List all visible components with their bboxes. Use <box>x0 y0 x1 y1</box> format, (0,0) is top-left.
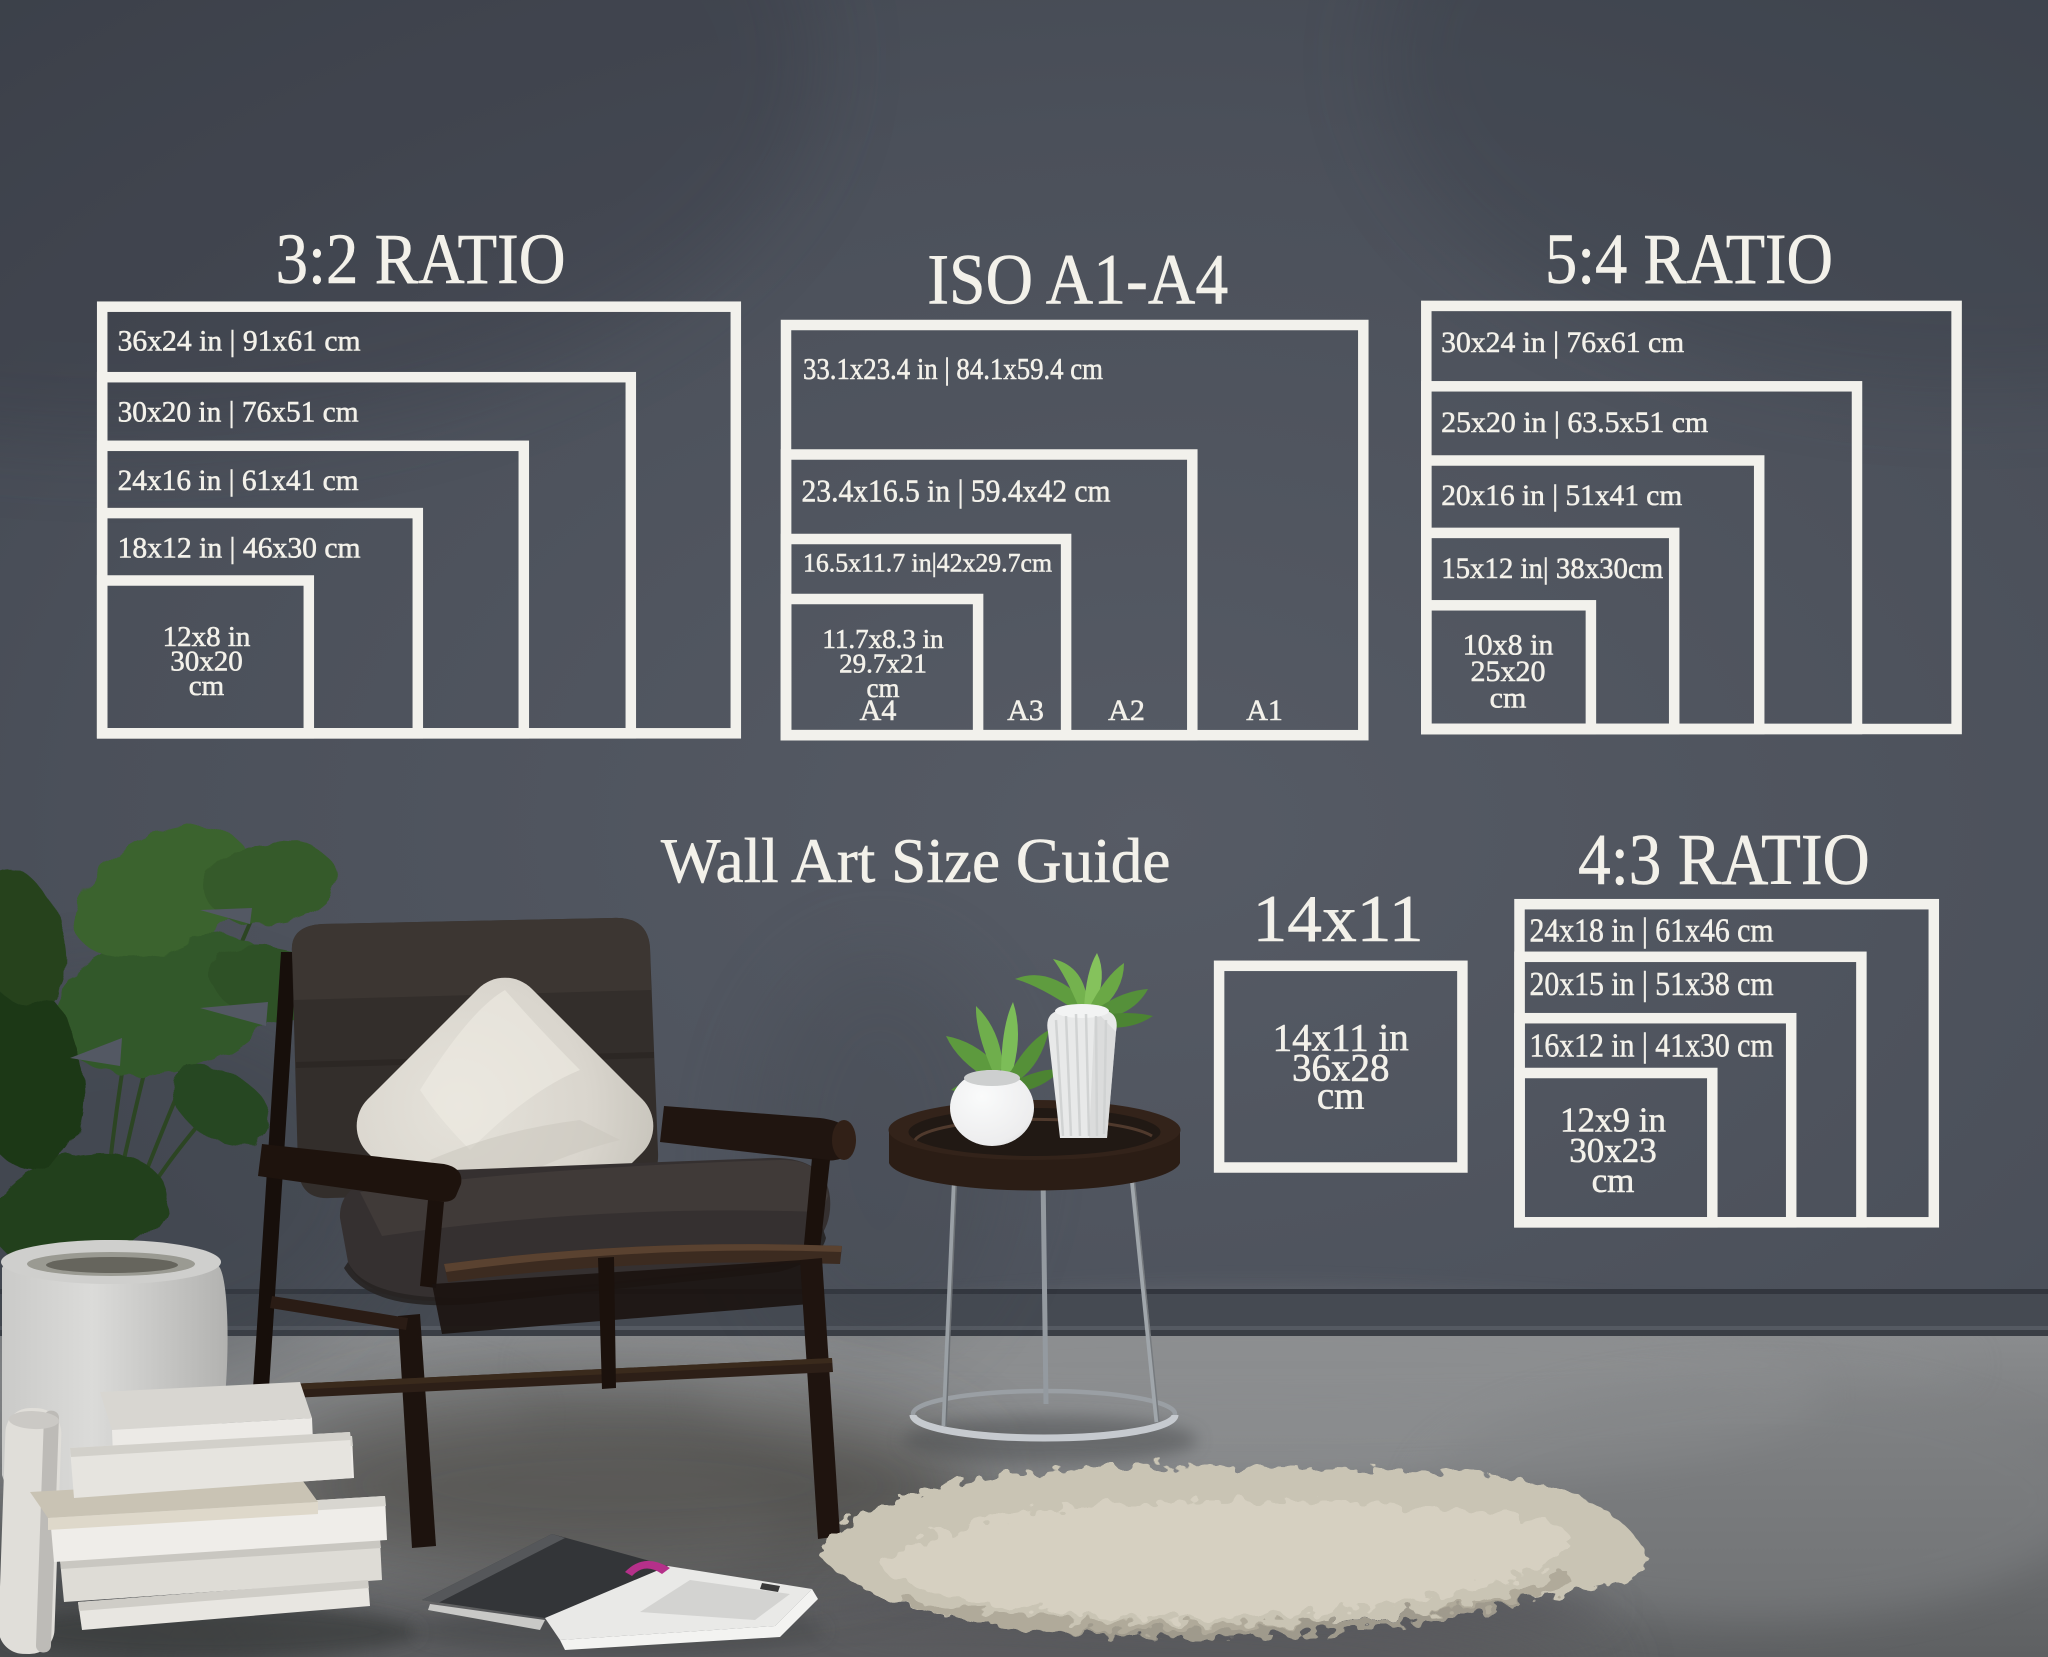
svg-text:18x12 in | 46x30 cm: 18x12 in | 46x30 cm <box>118 532 361 564</box>
svg-text:cm: cm <box>1592 1161 1635 1200</box>
svg-text:25x20 in | 63.5x51 cm: 25x20 in | 63.5x51 cm <box>1441 407 1708 439</box>
svg-text:A4: A4 <box>860 694 897 727</box>
svg-text:23.4x16.5 in | 59.4x42 cm: 23.4x16.5 in | 59.4x42 cm <box>802 474 1111 509</box>
svg-text:5:4 RATIO: 5:4 RATIO <box>1545 219 1833 299</box>
svg-text:20x15 in | 51x38 cm: 20x15 in | 51x38 cm <box>1530 966 1774 1003</box>
svg-text:4:3 RATIO: 4:3 RATIO <box>1578 819 1870 900</box>
svg-text:14x11: 14x11 <box>1253 882 1424 956</box>
svg-text:30x20 in | 76x51 cm: 30x20 in | 76x51 cm <box>118 397 359 429</box>
svg-text:16.5x11.7 in|42x29.7cm: 16.5x11.7 in|42x29.7cm <box>803 549 1052 578</box>
svg-text:36x24 in | 91x61 cm: 36x24 in | 91x61 cm <box>118 326 361 358</box>
svg-text:Wall Art Size Guide: Wall Art Size Guide <box>661 825 1171 896</box>
svg-text:20x16 in | 51x41 cm: 20x16 in | 51x41 cm <box>1441 480 1682 512</box>
svg-text:cm: cm <box>1317 1075 1365 1118</box>
svg-text:A2: A2 <box>1108 694 1145 727</box>
svg-text:33.1x23.4 in | 84.1x59.4 cm: 33.1x23.4 in | 84.1x59.4 cm <box>803 351 1103 386</box>
svg-text:24x16 in | 61x41 cm: 24x16 in | 61x41 cm <box>118 465 359 497</box>
svg-text:cm: cm <box>1490 682 1527 715</box>
svg-text:15x12 in| 38x30cm: 15x12 in| 38x30cm <box>1441 553 1663 585</box>
svg-text:16x12 in | 41x30 cm: 16x12 in | 41x30 cm <box>1530 1028 1774 1065</box>
svg-text:30x24 in | 76x61 cm: 30x24 in | 76x61 cm <box>1441 327 1684 359</box>
svg-text:A3: A3 <box>1007 694 1044 727</box>
svg-text:cm: cm <box>189 670 225 702</box>
svg-text:ISO A1-A4: ISO A1-A4 <box>927 239 1228 319</box>
svg-text:24x18 in | 61x46 cm: 24x18 in | 61x46 cm <box>1530 913 1774 950</box>
svg-text:3:2 RATIO: 3:2 RATIO <box>276 219 566 299</box>
svg-text:A1: A1 <box>1246 694 1283 727</box>
